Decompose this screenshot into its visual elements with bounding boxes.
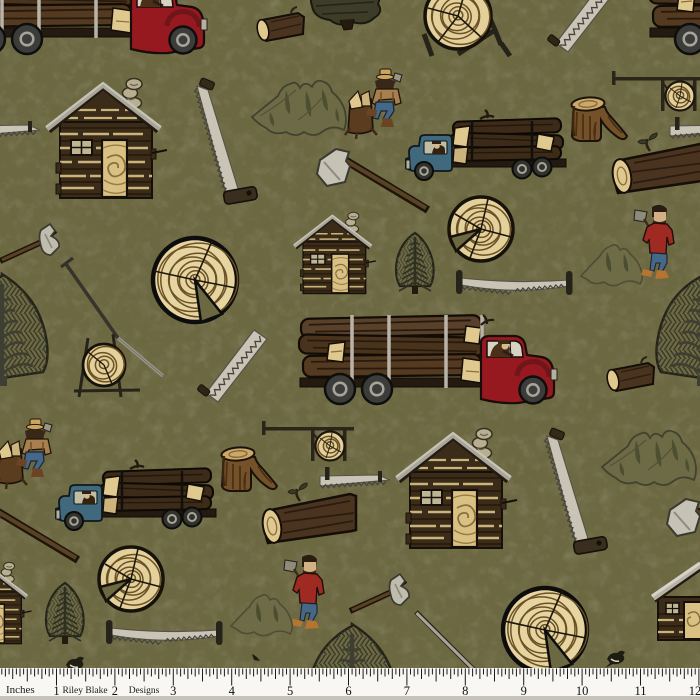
svg-text:2: 2 xyxy=(112,684,118,698)
svg-text:10: 10 xyxy=(576,684,589,698)
svg-text:7: 7 xyxy=(404,684,410,698)
svg-text:6: 6 xyxy=(345,684,351,698)
svg-text:3: 3 xyxy=(170,684,176,698)
svg-text:5: 5 xyxy=(287,684,293,698)
svg-text:Designs: Designs xyxy=(129,686,160,696)
svg-text:12: 12 xyxy=(689,684,700,698)
svg-text:4: 4 xyxy=(229,684,236,698)
svg-text:9: 9 xyxy=(521,684,527,698)
svg-text:Inches: Inches xyxy=(6,684,35,696)
svg-text:8: 8 xyxy=(462,684,468,698)
svg-text:1: 1 xyxy=(53,684,59,698)
svg-text:Riley Blake: Riley Blake xyxy=(62,686,107,696)
svg-text:11: 11 xyxy=(634,684,646,698)
